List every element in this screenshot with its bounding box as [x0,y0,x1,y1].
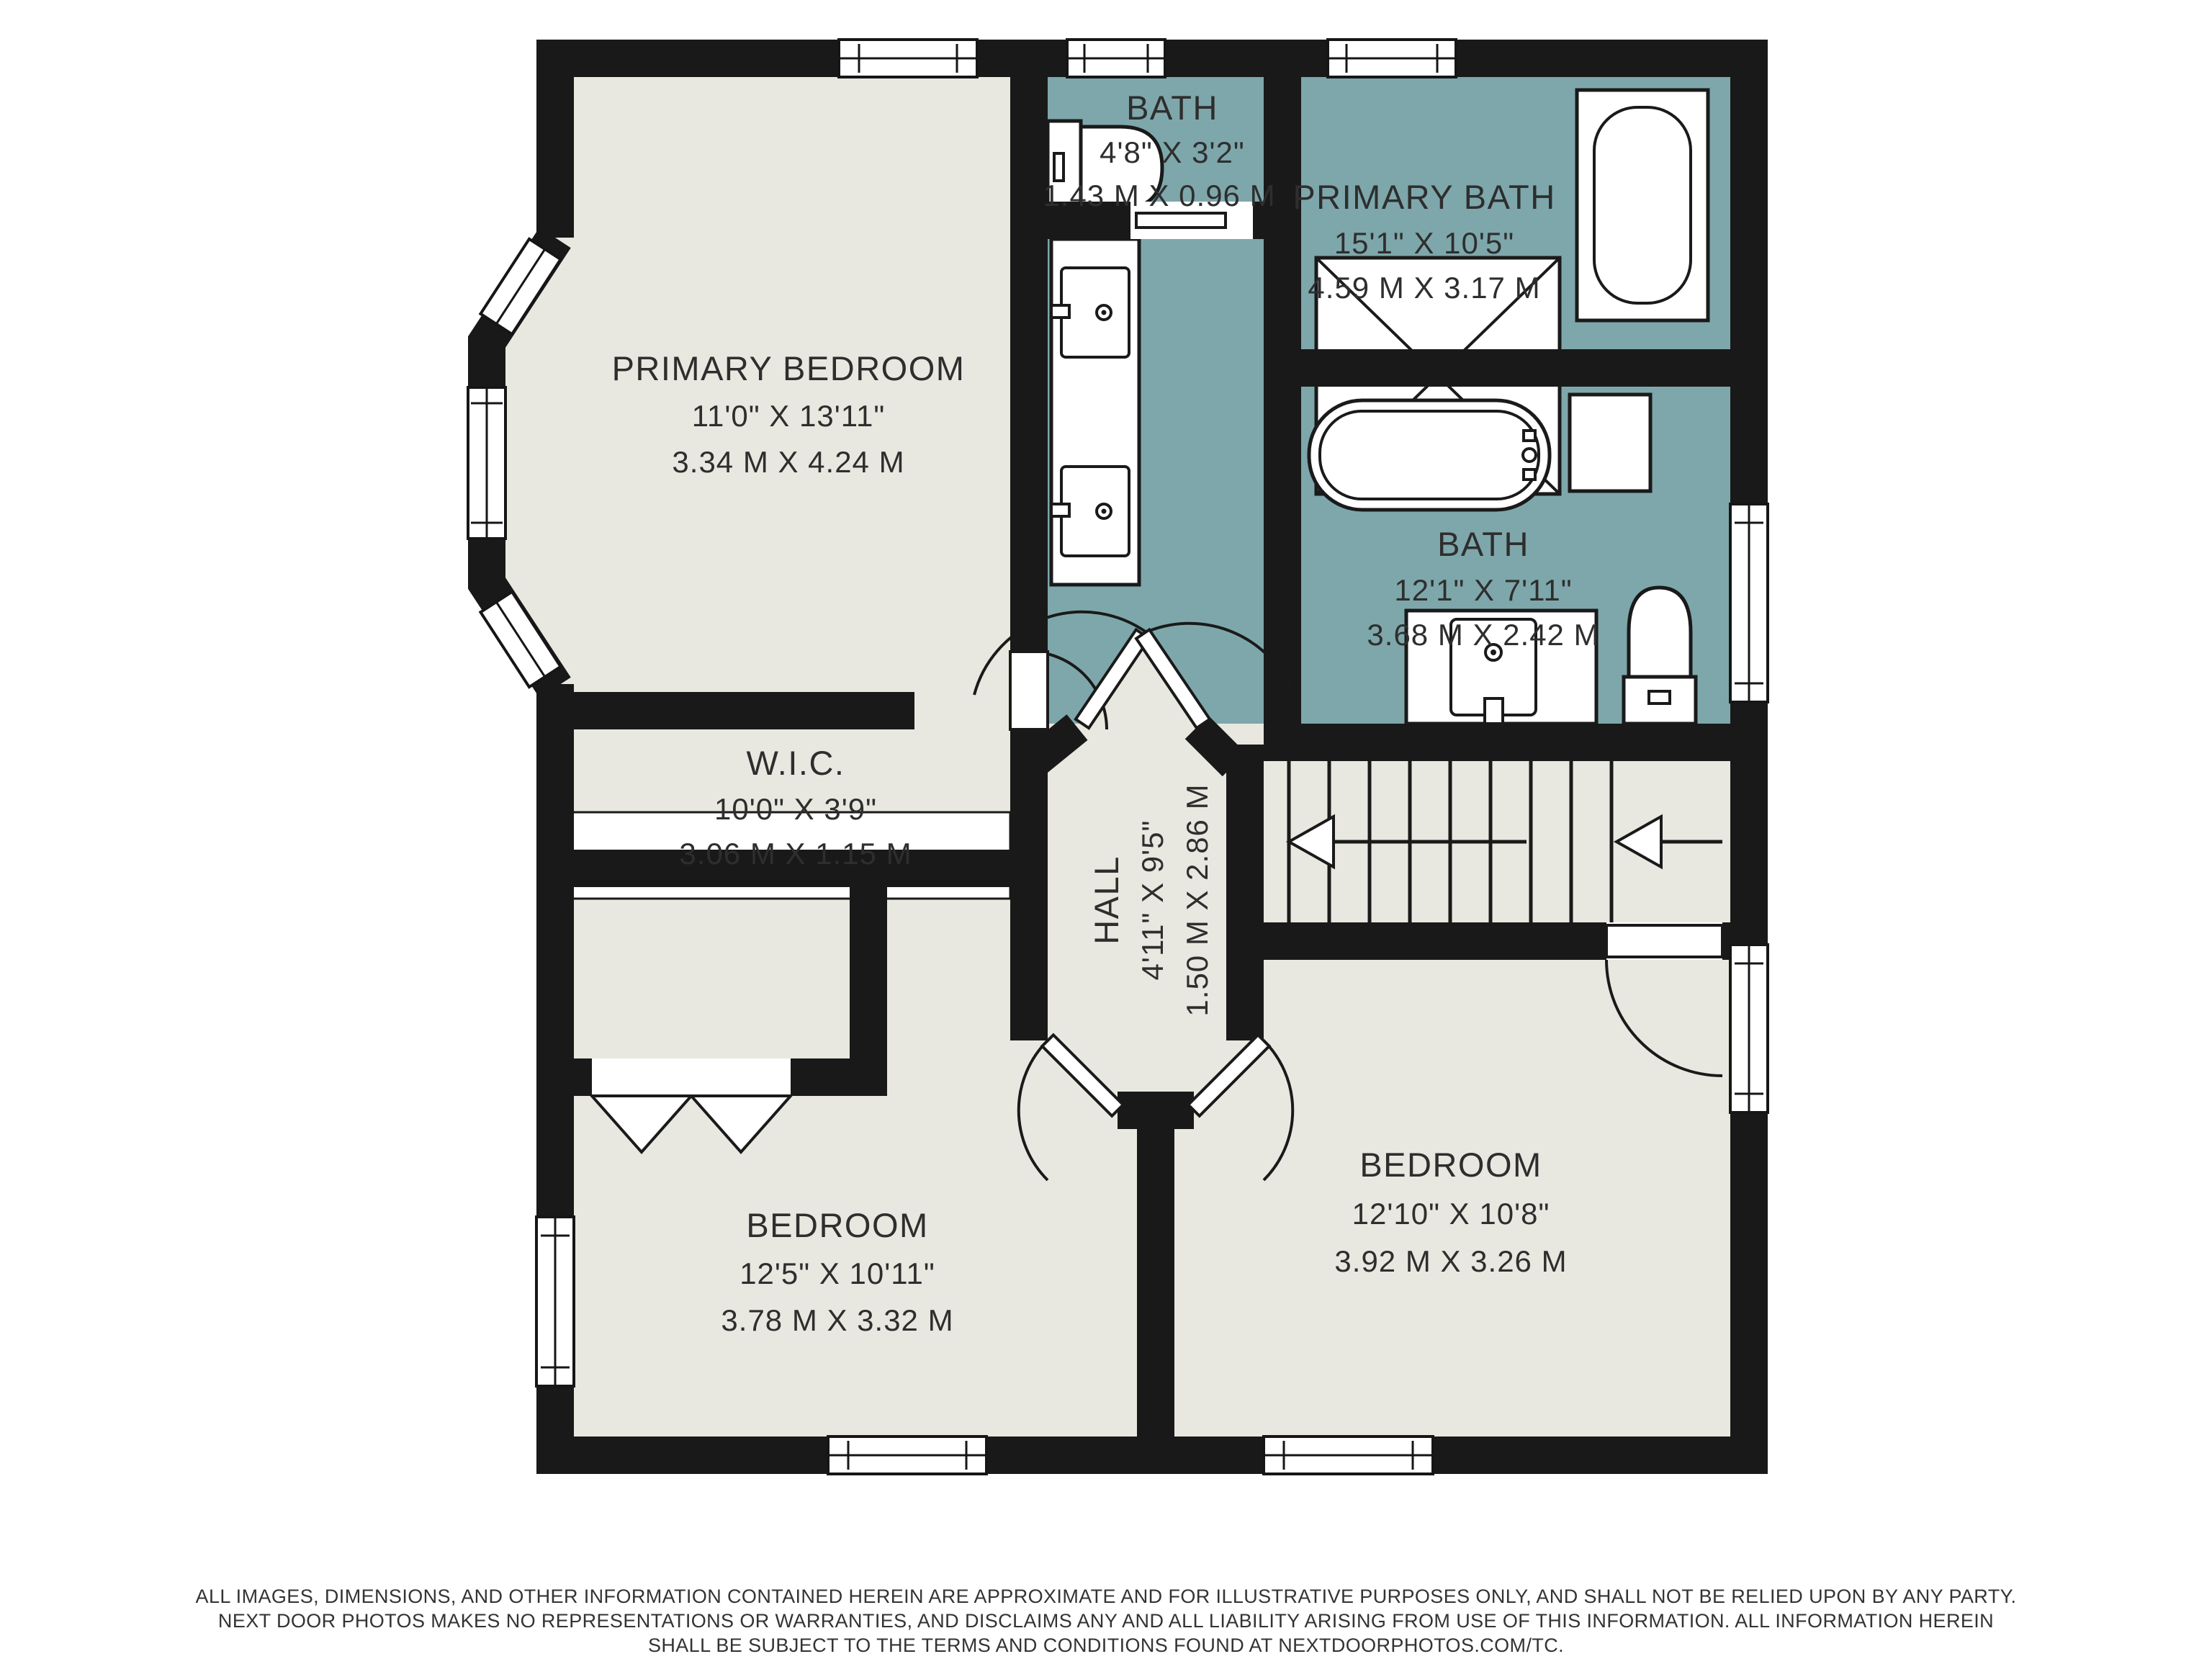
primary-bath-metric: 4.59 M X 3.17 M [1308,271,1540,305]
wall-bottom [536,1437,1768,1474]
floor-plan-canvas: PRIMARY BEDROOM 11'0" X 13'11" 3.34 M X … [0,0,2212,1659]
window-bottom-bedroom-left [828,1437,986,1474]
bedroom-left-name: BEDROOM [746,1206,928,1244]
wall-bath2-stairs [1264,724,1768,761]
bedroom-left-metric: 3.78 M X 3.32 M [721,1303,953,1337]
window-top-primary-bedroom [839,40,977,77]
small-bath-imperial: 4'8" X 3'2" [1100,135,1245,169]
wall-primarybath-bath2 [1301,349,1768,387]
wall-corridor-primarybath [1264,77,1301,724]
wall-bedroom-divider [1137,1110,1174,1437]
small-bath-name: BATH [1126,89,1218,127]
bedroom-right-metric: 3.92 M X 3.26 M [1334,1244,1567,1278]
wall-hall-stairs [1226,745,1264,1040]
wall-closet-right [850,887,887,1096]
bedroom-left-imperial: 12'5" X 10'11" [739,1256,935,1290]
wic-metric: 3.06 M X 1.15 M [679,837,912,871]
bath2-imperial: 12'1" X 7'11" [1394,573,1572,607]
disclaimer-line-1: ALL IMAGES, DIMENSIONS, AND OTHER INFORM… [196,1586,2017,1607]
small-bath-metric: 1.43 M X 0.96 M [1043,179,1275,212]
freestanding-tub [1309,400,1550,510]
bath2-name: BATH [1437,525,1529,563]
hall-name: HALL [1087,855,1125,945]
primary-bedroom-name: PRIMARY BEDROOM [612,349,966,387]
window-left-bedroom-left [536,1217,574,1386]
window-bay-middle [468,387,505,539]
window-right-bedroom [1730,945,1768,1112]
primary-bedroom-imperial: 11'0" X 13'11" [692,399,885,433]
wall-bedroom-corridor [1010,77,1048,652]
room-label-bedroom-left: BEDROOM 12'5" X 10'11" 3.78 M X 3.32 M [721,1206,953,1337]
bath2-metric: 3.68 M X 2.42 M [1367,618,1599,652]
double-sink-vanity [1051,239,1139,585]
window-top-small-bath [1067,40,1165,77]
disclaimer-line-3: SHALL BE SUBJECT TO THE TERMS AND CONDIT… [648,1635,1564,1656]
primary-bath-name: PRIMARY BATH [1292,178,1555,216]
hall-imperial: 4'11" X 9'5" [1136,820,1169,981]
primary-bath-imperial: 15'1" X 10'5" [1334,226,1514,260]
disclaimer: ALL IMAGES, DIMENSIONS, AND OTHER INFORM… [196,1586,2017,1656]
wic-name: W.I.C. [747,744,845,782]
disclaimer-line-2: NEXT DOOR PHOTOS MAKES NO REPRESENTATION… [218,1610,1994,1632]
bedroom-right-imperial: 12'10" X 10'8" [1352,1197,1550,1231]
linen-shelf [1570,395,1650,491]
room-label-bedroom-right: BEDROOM 12'10" X 10'8" 3.92 M X 3.26 M [1334,1146,1567,1278]
window-right-bath [1730,504,1768,702]
wic-imperial: 10'0" X 3'9" [714,792,877,826]
primary-bedroom-metric: 3.34 M X 4.24 M [672,445,904,479]
toilet-bath2 [1624,588,1696,724]
wall-wic-top [536,692,914,729]
window-top-primary-bath [1328,40,1456,77]
wall-left-upper [536,40,574,238]
wall-stairs-bedroom [1226,922,1606,960]
bedroom-right-name: BEDROOM [1359,1146,1542,1184]
floor-plan-page: PRIMARY BEDROOM 11'0" X 13'11" 3.34 M X … [0,0,2212,1659]
window-bottom-bedroom-right [1264,1437,1433,1474]
hall-metric: 1.50 M X 2.86 M [1180,783,1214,1016]
soaking-tub [1577,90,1708,320]
